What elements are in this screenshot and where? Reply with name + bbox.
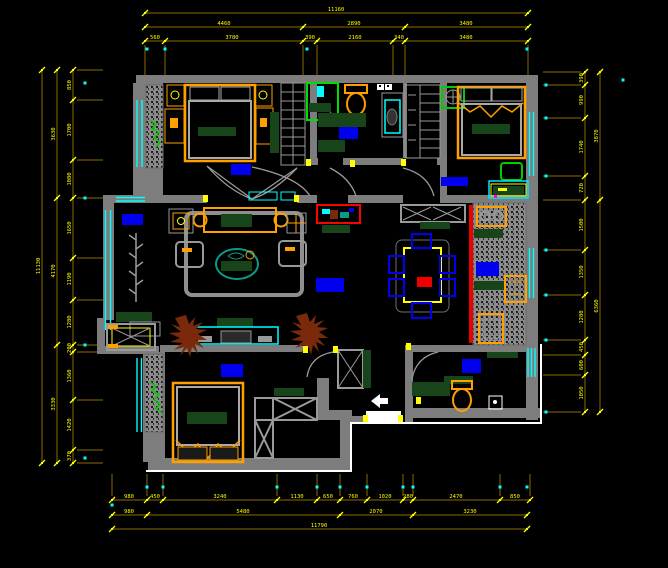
tv (221, 331, 251, 343)
bed1-blanket (198, 127, 236, 136)
dim-label: 760 (348, 494, 358, 500)
dim-label: 390 (579, 73, 585, 83)
closet-door (403, 168, 434, 196)
bedroom1 (150, 83, 305, 175)
dim-label: 450 (579, 342, 585, 352)
plant-stand (129, 233, 143, 302)
dim-label: 1020 (378, 494, 391, 500)
table-centerpiece (417, 277, 432, 287)
bed2-pillow (492, 88, 522, 101)
dim-label: 1350 (579, 265, 585, 278)
cyan-tick-dot (545, 117, 548, 120)
door-hinge-marker (303, 346, 308, 353)
bedroom1-double-door (207, 166, 297, 199)
cyan-tick-dot (545, 84, 548, 87)
dim-chain: 446028903480 (142, 21, 531, 30)
cyan-tick-dot (84, 197, 87, 200)
bed2-blanket (472, 124, 510, 134)
cyan-tick-dot (545, 411, 548, 414)
entry-door-mat (366, 411, 401, 424)
door-hinge-marker (398, 415, 403, 422)
dim-label: 1740 (579, 140, 585, 153)
dim-label: 600 (579, 360, 585, 370)
cyan-tick-dot (306, 48, 309, 51)
rug (462, 359, 481, 373)
dim-chain: 9804503240113065076010202802470850 (109, 474, 533, 503)
dim-label: 3480 (459, 21, 472, 27)
dim-label: 5480 (236, 509, 249, 515)
dim-label: 3630 (51, 127, 57, 140)
dim-label: 1050 (579, 386, 585, 399)
bed1-pillow (221, 87, 250, 100)
shelf (274, 388, 304, 396)
nightstand (167, 85, 184, 106)
door-hinge-marker (333, 346, 338, 353)
dim-label: 650 (323, 494, 333, 500)
rug (316, 278, 344, 292)
dim-chain: 38706360 (594, 69, 603, 415)
cyan-tick-dot (164, 48, 167, 51)
bath-cabinet (318, 140, 345, 152)
bedroom3 (150, 364, 317, 462)
door-hinge-marker (294, 195, 299, 202)
door-hinge-marker (416, 397, 421, 404)
door-hinge-marker (350, 160, 355, 167)
shower-head (317, 86, 324, 97)
counter (474, 229, 503, 238)
dim-label: 11130 (36, 258, 42, 275)
rug (122, 214, 143, 225)
rug (441, 177, 468, 186)
dim-chain: 560378039021603403480 (142, 35, 531, 75)
cyan-tick-dot (316, 486, 319, 489)
cyan-tick-dot (526, 48, 529, 51)
bed1-frame (185, 85, 255, 161)
bedroom2 (441, 87, 528, 198)
nightstand (255, 85, 272, 106)
bathroom1 (307, 83, 440, 158)
dim-label: 11790 (311, 523, 328, 529)
cyan-tick-dot (545, 175, 548, 178)
dim-label: 850 (67, 80, 73, 90)
balcony (107, 324, 155, 350)
dim-chain: 11160 (142, 7, 531, 16)
dim-label: 720 (579, 183, 585, 193)
dim-label: 850 (510, 494, 520, 500)
bed1-pillow (190, 87, 219, 100)
dim-label: 3240 (213, 494, 226, 500)
dim-label: 3330 (51, 397, 57, 410)
dining-chairs (389, 234, 455, 318)
cyan-tick-dot (339, 486, 342, 489)
wardrobe1 (281, 83, 305, 165)
wardrobe3 (255, 398, 317, 458)
cyan-tick-dot (84, 82, 87, 85)
dim-label: 370 (67, 451, 73, 461)
armchair (176, 242, 203, 267)
cyan-tick-dot (412, 486, 415, 489)
dim-label: 1280 (579, 310, 585, 323)
dim-label: 280 (403, 494, 413, 500)
cyan-tick-dot (366, 486, 369, 489)
cyan-tick-dot (545, 249, 548, 252)
dining-table (404, 248, 441, 302)
cad-floorplan-canvas: 1116044602890348056037803902160340348098… (0, 0, 668, 568)
cyan-tick-dot (402, 486, 405, 489)
hall-closet (405, 85, 440, 158)
cyan-tick-dot (111, 504, 114, 507)
entry-arrow-icon (371, 394, 388, 408)
desk-accent (494, 195, 497, 198)
cyan-tick-dot (146, 486, 149, 489)
cyan-tick-dot (499, 486, 502, 489)
counter (474, 281, 505, 290)
tv-shelf (217, 318, 253, 327)
dim-chain: 11790 (109, 523, 530, 532)
dim-label: 560 (150, 35, 160, 41)
dim-label: 2890 (347, 21, 360, 27)
dim-label: 1700 (67, 123, 73, 136)
dim-label: 3230 (463, 509, 476, 515)
dim-label: 11160 (328, 7, 345, 13)
dim-label: 3780 (225, 35, 238, 41)
bed3-drawer (210, 447, 238, 460)
dim-label: 390 (305, 35, 315, 41)
cyan-tick-dot (162, 486, 165, 489)
dim-label: 2470 (449, 494, 462, 500)
wc-door (330, 168, 356, 196)
basin (387, 109, 397, 125)
bed2-drape (459, 103, 523, 117)
cyan-tick-dot (622, 79, 625, 82)
dim-chain: 39099017407201500135012804506001050 (543, 69, 588, 415)
door-hinge-marker (406, 343, 411, 350)
dim-chain: 363041703330 (51, 67, 60, 466)
dim-label: 1190 (67, 272, 73, 285)
wall-shelf (281, 192, 295, 200)
dim-label: 980 (124, 509, 134, 515)
dim-label: 1650 (67, 221, 73, 234)
dim-chain: 11130 (36, 67, 45, 466)
dim-label: 990 (579, 95, 585, 105)
side-cabinet (116, 312, 152, 322)
dim-chain: 8501700108016501190128020013601420370 (67, 67, 103, 466)
dim-label: 980 (124, 494, 134, 500)
desk-chair (501, 163, 522, 180)
kitchen-partition (469, 205, 473, 343)
dim-label: 1420 (67, 418, 73, 431)
living-room (116, 192, 328, 357)
cyan-tick-dot (84, 457, 87, 460)
rug (221, 364, 243, 377)
door-hinge-marker (306, 159, 311, 166)
cyan-tick-dot (545, 294, 548, 297)
entry (366, 394, 401, 424)
toilet2-bowl (453, 389, 471, 411)
dim-label: 1360 (67, 369, 73, 382)
dining-room (389, 205, 473, 343)
sofa-cushion (221, 214, 252, 227)
rug (476, 262, 499, 276)
bath2-door (412, 352, 438, 379)
cyan-tick-dot (526, 486, 529, 489)
cyan-tick-dot (146, 48, 149, 51)
dim-label: 1080 (67, 172, 73, 185)
rug (231, 164, 251, 175)
hallway (316, 205, 371, 388)
dim-label: 4460 (217, 21, 230, 27)
dim-label: 340 (394, 35, 404, 41)
bed2-pillow (461, 88, 491, 101)
door-hinge-marker (401, 159, 406, 166)
dim-label: 3870 (594, 129, 600, 142)
dim-label: 4170 (51, 264, 57, 277)
cyan-tick-dot (84, 344, 87, 347)
toilet-bowl (347, 93, 365, 115)
dim-label: 450 (150, 494, 160, 500)
dim-label: 6360 (594, 299, 600, 312)
bathroom2 (412, 352, 518, 411)
dim-label: 2160 (348, 35, 361, 41)
dim-label: 3480 (459, 35, 472, 41)
bedroom3-door (307, 352, 333, 377)
dim-label: 1280 (67, 315, 73, 328)
window-bedroom3 (137, 358, 142, 432)
counter (412, 382, 450, 396)
door-hinge-marker (363, 415, 368, 422)
cyan-tick-dot (276, 486, 279, 489)
dim-label: 1130 (290, 494, 303, 500)
rug (339, 127, 358, 139)
dim-label: 200 (67, 343, 73, 353)
door-hinge-marker (203, 195, 208, 202)
cabinet-strip (270, 112, 279, 153)
cyan-tick-dot (545, 339, 548, 342)
toilet-tank (345, 85, 367, 93)
dim-label: 1500 (579, 218, 585, 231)
dim-label: 2070 (369, 509, 382, 515)
bed3-drawer (178, 447, 207, 460)
bed3-blanket (187, 412, 227, 424)
dim-chain: 980548020703230 (109, 509, 530, 518)
utility-shaft (338, 350, 371, 388)
bath-cabinet (318, 113, 366, 127)
